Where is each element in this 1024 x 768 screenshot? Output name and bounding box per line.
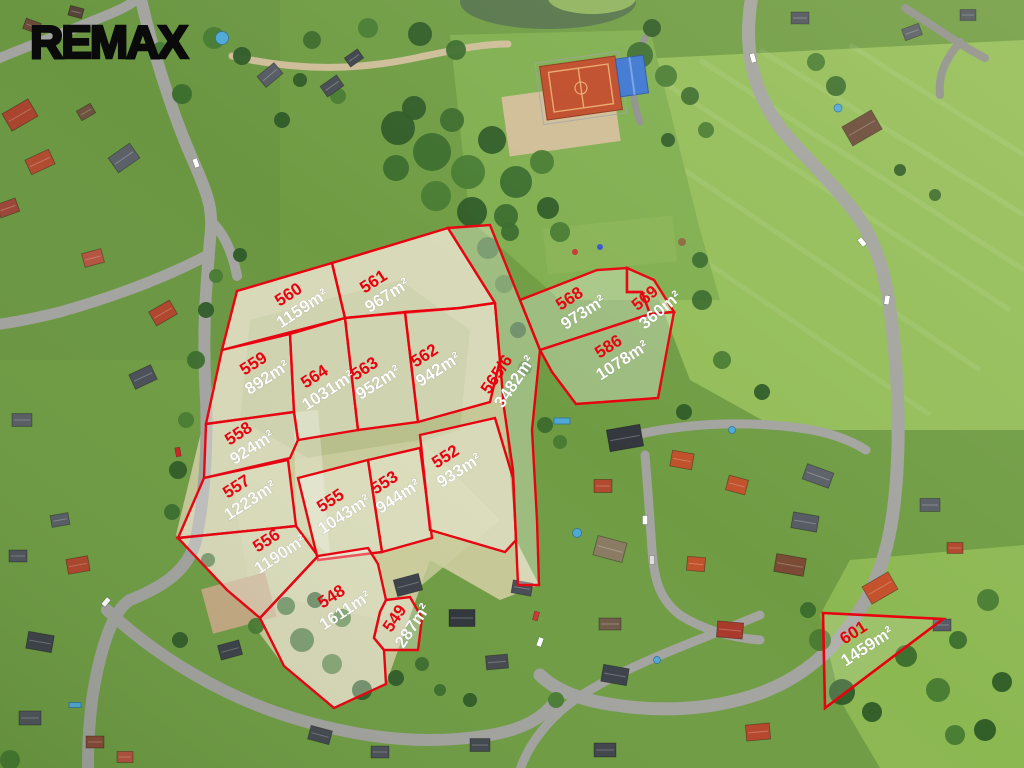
aerial-scene: 560 1159m² 561 967m² 559 892m² 564 1031m…	[0, 0, 1024, 768]
remax-logo: REMAX	[30, 16, 188, 68]
aerial-photo: 560 1159m² 561 967m² 559 892m² 564 1031m…	[0, 0, 1024, 768]
light-overlay	[0, 0, 1024, 768]
